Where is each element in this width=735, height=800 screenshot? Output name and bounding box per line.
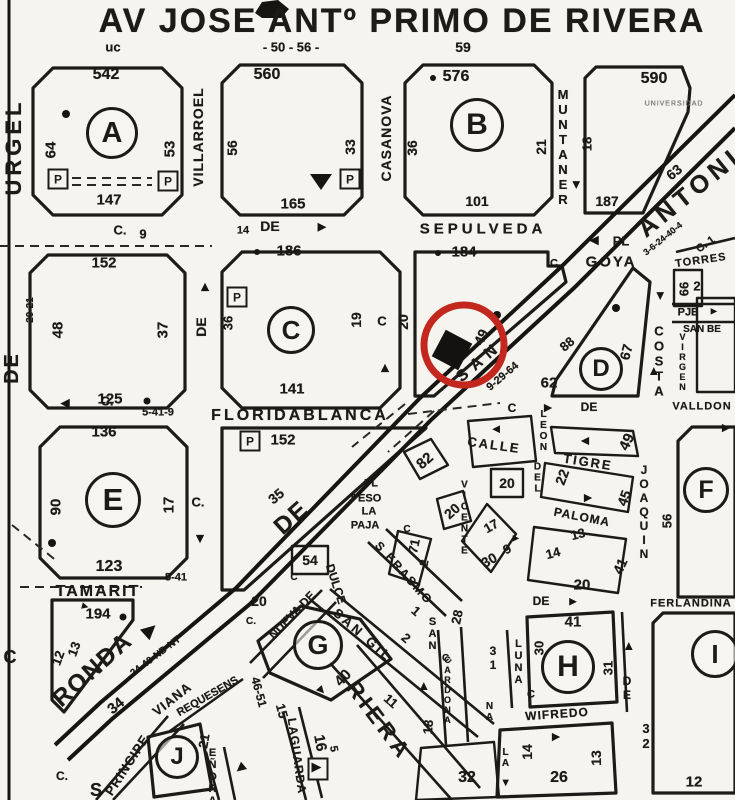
block-letter: C xyxy=(282,315,301,346)
one-way-arrow-icon: ► xyxy=(647,365,660,378)
street-label-luna: LUNA xyxy=(513,638,524,686)
route-code-5-41: 5-41 xyxy=(165,573,187,584)
block-number-2-box: 2 xyxy=(693,280,700,293)
block-number-13-paloma: 13 xyxy=(569,526,586,542)
street-label-c-bottom: C. xyxy=(56,770,68,782)
block-number-560: 560 xyxy=(254,67,281,83)
map-dot xyxy=(62,110,70,118)
route-code-14: 14 xyxy=(237,226,249,237)
block-number-101: 101 xyxy=(465,194,488,208)
block-number-36-c: 36 xyxy=(222,316,235,330)
street-label-joaquin: JOAQUIN xyxy=(638,463,650,561)
district-circle-g: G xyxy=(293,620,343,670)
map-dot xyxy=(254,249,260,255)
street-label-c-floridablanca-w: C. xyxy=(101,395,114,408)
scanned-street-map: AV JOSE ANTº PRIMO DE RIVERAuc- 50 - 56 … xyxy=(0,0,735,800)
street-label-enora: EÑORA xyxy=(207,747,218,800)
block-number-20-w: 20 xyxy=(396,314,410,330)
block-number-152: 152 xyxy=(91,256,116,271)
block-number-37: 37 xyxy=(156,322,171,339)
block-number-56: 56 xyxy=(225,140,239,156)
block-number-66: 66 xyxy=(678,282,691,296)
block-number-542: 542 xyxy=(93,67,120,83)
avenue-title: AV JOSE ANTº PRIMO DE RIVERA xyxy=(99,4,706,38)
district-circle-e: E xyxy=(85,472,141,528)
block-number-12-i: 12 xyxy=(686,775,703,790)
one-way-arrow-icon: ► xyxy=(571,179,584,192)
block-number-16: 16 xyxy=(311,733,329,752)
block-number-31-h: 31 xyxy=(602,661,615,675)
district-circle-a: A xyxy=(86,107,138,159)
block-number-20-tamarit: 20 xyxy=(251,594,267,608)
one-way-arrow-icon: ► xyxy=(377,361,391,375)
block-letter: G xyxy=(307,630,328,661)
parking-icon: P xyxy=(340,169,361,190)
district-circle-d: D xyxy=(579,347,623,391)
street-label-del: DEL xyxy=(532,462,542,495)
street-label-c-floridablanca-e: C xyxy=(508,402,517,414)
block-number-26: 26 xyxy=(550,770,568,786)
plaza-label-paja: PAJA xyxy=(351,521,380,532)
street-label-muntaner: MUNTANER xyxy=(557,87,570,207)
block-letter: E xyxy=(103,482,124,518)
street-label-universidad: UNIVERSIDAD xyxy=(645,101,704,108)
street-label-vicente: VICENTE xyxy=(459,480,469,557)
street-label-s-bottom: S xyxy=(90,781,102,799)
block-letter: F xyxy=(698,476,713,505)
block-number-147: 147 xyxy=(96,193,121,208)
street-label-c-left: C xyxy=(4,648,17,666)
block-number-19: 19 xyxy=(349,312,363,328)
parking-icon: P xyxy=(240,431,261,452)
block-number-33: 33 xyxy=(343,139,357,155)
block-letter: D xyxy=(592,355,609,383)
one-way-arrow-icon: ► xyxy=(315,220,330,235)
street-label-floridablanca: FLORIDABLANCA xyxy=(211,408,389,424)
map-dot xyxy=(612,304,620,312)
block-number-56-f: 56 xyxy=(661,514,674,528)
block-number-123: 123 xyxy=(96,559,123,575)
district-circle-f: F xyxy=(683,467,729,513)
district-circle-j: J xyxy=(155,735,199,779)
plaza-label-la: LA xyxy=(362,507,377,518)
street-label-de-villarroel: DE xyxy=(194,317,208,336)
district-circle-h: H xyxy=(541,640,595,694)
block-number-18-cardona: 18 xyxy=(421,719,435,735)
map-dot xyxy=(120,614,127,621)
street-label-cardona: CARDONA xyxy=(443,655,452,725)
street-label-c-casanova: C xyxy=(377,315,386,328)
flag-icon xyxy=(308,758,329,781)
one-way-arrow-icon: ► xyxy=(622,640,635,653)
one-way-arrow-icon: ► xyxy=(417,680,430,693)
one-way-arrow-icon: ► xyxy=(567,595,580,608)
one-way-arrow-icon: ► xyxy=(57,395,73,411)
street-label-na: NA xyxy=(484,701,494,723)
one-way-arrow-icon: ► xyxy=(655,290,668,303)
street-label-tamarit: TAMARIT xyxy=(56,584,141,600)
street-label-leon: LEON xyxy=(538,409,548,453)
route-code-9: 9 xyxy=(139,228,146,241)
block-number-152-p: 152 xyxy=(270,433,295,448)
one-way-arrow-icon: ► xyxy=(511,534,522,545)
block-number-165: 165 xyxy=(280,197,305,212)
block-number-13-26: 13 xyxy=(589,750,603,766)
one-way-arrow-icon: ► xyxy=(549,729,563,743)
route-code-20-21: 20-21 xyxy=(26,297,36,323)
map-dot xyxy=(48,539,56,547)
one-way-arrow-icon: ► xyxy=(586,232,602,248)
map-dot xyxy=(430,75,436,81)
block-number-90: 90 xyxy=(49,499,64,516)
street-label-de-urgel: DE xyxy=(2,352,22,384)
street-label-casanova: CASANOVA xyxy=(379,94,393,181)
one-way-arrow-icon: ► xyxy=(541,400,555,414)
district-circle-i: I xyxy=(691,630,735,678)
street-label-c-erasmo: C xyxy=(403,525,410,535)
street-label-de-i: DE xyxy=(621,674,633,702)
block-number-71: 71 xyxy=(406,538,422,555)
block-number-14-26: 14 xyxy=(520,744,534,760)
street-label-de-sepulveda: DE xyxy=(260,219,279,233)
street-label-villarroel: VILLARROEL xyxy=(191,87,205,186)
block-letter: I xyxy=(711,639,718,670)
plaza-label-pl: PL xyxy=(613,235,630,248)
block-letter: A xyxy=(102,117,123,150)
block-number-62: 62 xyxy=(541,376,558,391)
block-number-31-w: 31 xyxy=(487,644,499,672)
district-circle-b: B xyxy=(450,98,504,152)
street-label-la: LA xyxy=(500,747,510,769)
map-dot xyxy=(144,398,151,405)
one-way-arrow-icon: ► xyxy=(197,280,211,294)
block-number-36-b: 36 xyxy=(405,140,419,156)
parking-icon: P xyxy=(227,287,248,308)
block-number-18: 18 xyxy=(581,137,594,151)
one-way-arrow-icon: ► xyxy=(578,435,592,449)
block-number-141: 141 xyxy=(279,382,304,397)
block-number-28: 28 xyxy=(449,609,465,626)
block-number-187: 187 xyxy=(595,194,618,208)
plaza-label-goya: GOYA xyxy=(586,255,637,270)
poi-triangle-icon xyxy=(310,174,332,190)
plaza-label-pl-peso: PL xyxy=(364,479,378,490)
street-label-urgel: URGEL xyxy=(3,99,25,196)
block-letter: B xyxy=(466,108,488,142)
block-number-54: 54 xyxy=(302,553,318,567)
street-label-c-54: C xyxy=(290,573,297,583)
block-number-136: 136 xyxy=(91,425,116,440)
street-label-san-be: SAN BE xyxy=(683,325,721,335)
street-label-san-cardona: SAN xyxy=(427,616,438,652)
block-number-48: 48 xyxy=(51,322,66,339)
street-label-costa: COSTA xyxy=(653,324,666,399)
street-label-c-20: C. xyxy=(246,617,256,627)
one-way-arrow-icon: ► xyxy=(194,532,208,546)
street-label-de-h: DE xyxy=(533,595,550,607)
block-letter: J xyxy=(170,743,183,771)
block-number-184: 184 xyxy=(451,245,476,260)
block-number-590: 590 xyxy=(641,71,668,87)
street-label-pje: PJE xyxy=(678,308,699,319)
block-number-32-riera: 32 xyxy=(458,770,476,786)
one-way-arrow-icon: ► xyxy=(709,307,720,318)
block-number-32-i: 32 xyxy=(640,721,653,751)
street-label-valldonzella: VALLDON xyxy=(672,402,731,413)
street-label-c-villarroel-s: C. xyxy=(192,496,205,509)
block-number-21: 21 xyxy=(534,139,548,155)
street-label-de-floridablanca-e: DE xyxy=(581,401,598,413)
route-code-5-41-9: 5-41-9 xyxy=(142,408,174,419)
street-label-sepulveda: SEPULVEDA xyxy=(420,222,547,237)
district-circle-c: C xyxy=(267,306,315,354)
block-number-64: 64 xyxy=(44,142,59,159)
map-dot xyxy=(435,250,441,256)
one-way-arrow-icon: ► xyxy=(581,490,595,504)
block-number-53: 53 xyxy=(163,141,178,158)
block-letter: H xyxy=(557,650,579,684)
block-number-20-paloma: 20 xyxy=(574,578,591,593)
street-label-ferlandina: FERLANDINA xyxy=(650,599,732,610)
street-label-c-h: C xyxy=(527,690,535,701)
route-code-59: 59 xyxy=(455,40,471,54)
block-number-41-h: 41 xyxy=(565,615,582,630)
one-way-arrow-icon: ► xyxy=(719,420,733,434)
plaza-label-peso: PESO xyxy=(351,494,382,505)
parking-icon: P xyxy=(158,171,179,192)
one-way-arrow-icon: ► xyxy=(500,778,511,789)
route-code-50-56: - 50 - 56 - xyxy=(263,41,319,54)
route-code-uc: uc xyxy=(105,41,120,54)
one-way-arrow-icon: ► xyxy=(490,424,503,437)
block-number-17-e: 17 xyxy=(162,497,177,514)
block-number-14-paloma: 14 xyxy=(544,545,561,561)
block-number-20-box: 20 xyxy=(499,476,515,490)
street-label-c-sepulveda-w: C. xyxy=(114,224,127,237)
street-label-c-goya: C xyxy=(550,259,558,270)
block-number-186: 186 xyxy=(276,244,301,259)
block-number-576: 576 xyxy=(443,69,470,85)
street-label-virgen: VIRGEN xyxy=(678,332,687,392)
parking-icon: P xyxy=(48,169,69,190)
